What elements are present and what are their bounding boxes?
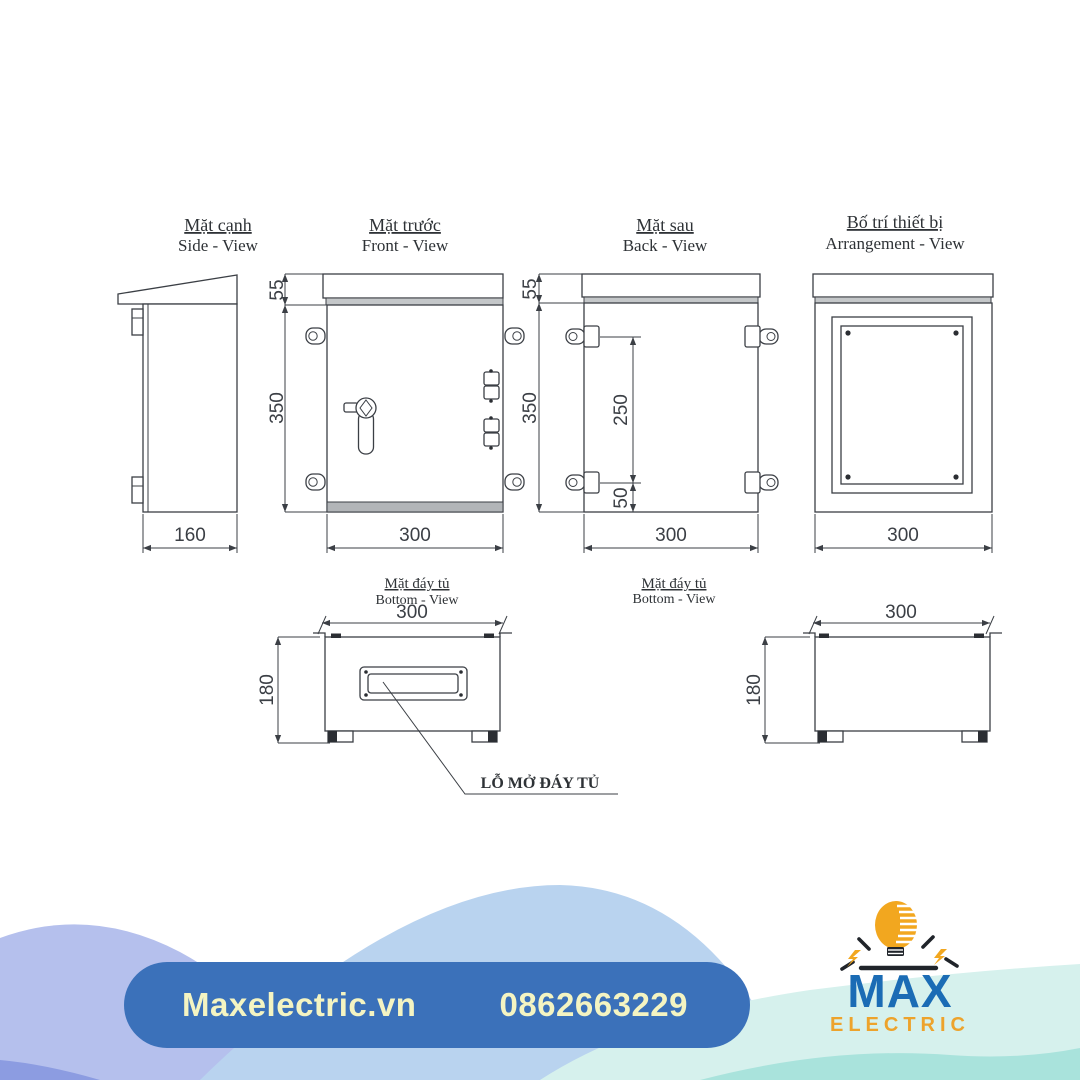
bottom2-title-en: Bottom - View (633, 592, 717, 607)
lightbulb-icon (818, 880, 982, 976)
arrangement-dim-width: 300 (887, 525, 919, 546)
side-roof (118, 275, 237, 304)
bottom-view-2: Mặt đáy tủ Bottom - View 300 180 (633, 576, 1002, 743)
lightning-bolt-left-icon (847, 950, 861, 967)
front-dim-roof: 55 (267, 279, 288, 300)
side-view-title-vi: Mặt cạnh (184, 215, 251, 235)
bottom2-title-vi: Mặt đáy tủ (642, 576, 707, 592)
footer-contact-bar: Maxelectric.vn 0862663229 (124, 962, 750, 1048)
lightning-bolt-right-icon (934, 949, 947, 965)
front-dim-height: 350 (267, 392, 288, 424)
front-view-title-en: Front - View (362, 236, 449, 255)
bottom-view-1: Mặt đáy tủ Bottom - View 300 180 LỖ MỞ Đ… (257, 576, 618, 794)
bottom2-dim-depth: 180 (744, 674, 765, 706)
side-view: Mặt cạnh Side - View 160 (118, 215, 259, 553)
back-view-title-vi: Mặt sau (636, 215, 694, 235)
website-text: Maxelectric.vn (182, 986, 416, 1024)
front-roof (323, 274, 503, 298)
logo-name: MAX (818, 972, 982, 1010)
side-hinge-top (132, 309, 143, 335)
bottom2-dim-width: 300 (885, 602, 917, 623)
back-dim-lug-span: 250 (611, 394, 632, 426)
front-view: Mặt trước Front - View (267, 215, 524, 553)
arrangement-plate-inner (841, 326, 963, 484)
back-dim-width: 300 (655, 525, 687, 546)
front-dim-width: 300 (399, 525, 431, 546)
logo-subtitle: ELECTRIC (818, 1014, 982, 1037)
side-dim-width: 160 (174, 525, 206, 546)
back-dim-height: 350 (520, 392, 541, 424)
arrangement-view: Bố trí thiết bị Arrangement - View 300 (813, 212, 993, 553)
side-body (143, 304, 237, 512)
side-hinge-bottom (132, 477, 143, 503)
side-view-title-en: Side - View (178, 236, 259, 255)
front-view-title-vi: Mặt trước (369, 215, 441, 235)
max-electric-logo: MAX ELECTRIC (818, 880, 982, 1050)
arrangement-view-title-vi: Bố trí thiết bị (847, 212, 944, 232)
bottom1-title-vi: Mặt đáy tủ (385, 576, 450, 592)
back-dim-lug-offset: 50 (611, 487, 632, 508)
phone-text: 0862663229 (499, 986, 688, 1024)
back-view: Mặt sau Back - View 250 50 55 350 (520, 215, 778, 553)
arrangement-roof (813, 274, 993, 297)
bottom1-callout-label: LỖ MỞ ĐÁY TỦ (481, 772, 600, 792)
poster-page: { "views": { "side": {"title_vi": "Mặt c… (0, 0, 1080, 1080)
bottom1-dim-depth: 180 (257, 674, 278, 706)
back-dim-roof: 55 (520, 278, 541, 299)
bottom1-dim-width: 300 (396, 602, 428, 623)
bottom1-opening (360, 667, 467, 700)
bottom2-body (815, 637, 990, 731)
arrangement-view-title-en: Arrangement - View (825, 234, 965, 253)
back-roof (582, 274, 760, 297)
back-view-title-en: Back - View (623, 236, 708, 255)
